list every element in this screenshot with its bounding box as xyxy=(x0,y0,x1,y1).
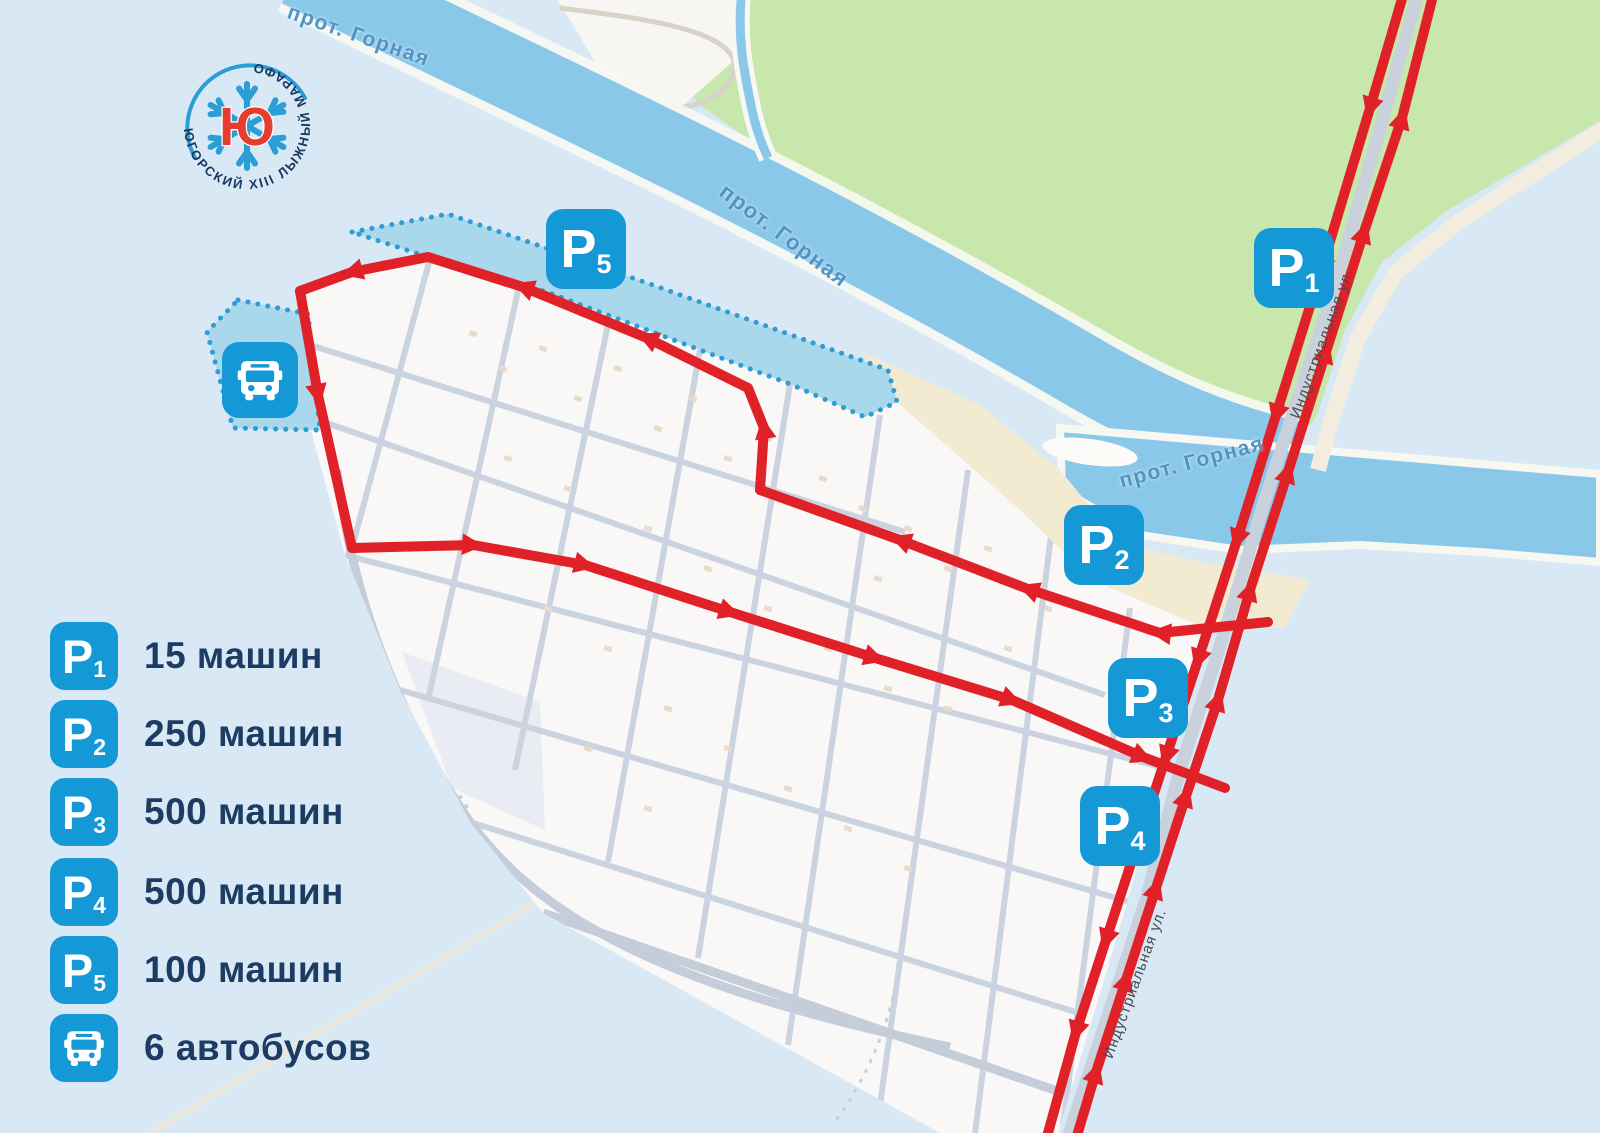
badge-letter: P xyxy=(62,711,93,758)
badge-sub: 1 xyxy=(1305,270,1320,297)
map-badge-p4: P4 xyxy=(1080,786,1160,866)
legend-badge-p2: P2 xyxy=(50,700,118,768)
legend-label-p3: 500 машин xyxy=(144,791,344,833)
legend-label-p2: 250 машин xyxy=(144,713,344,755)
badge-letter: P xyxy=(62,789,93,836)
legend-label-p4: 500 машин xyxy=(144,871,344,913)
map-badge-p1: P1 xyxy=(1254,228,1334,308)
legend-row-p3: P3 500 машин xyxy=(50,778,344,846)
legend-row-p5: P5 100 машин xyxy=(50,936,344,1004)
badge-sub: 4 xyxy=(1131,828,1146,855)
legend-badge-p1: P1 xyxy=(50,622,118,690)
event-logo: Ю ЮГОРСКИЙ XIII ЛЫЖНЫЙ МАРАФОН xyxy=(157,38,337,218)
badge-sub: 2 xyxy=(93,736,106,759)
legend-row-p1: P1 15 машин xyxy=(50,622,323,690)
badge-letter: P xyxy=(62,869,93,916)
badge-sub: 1 xyxy=(93,658,106,681)
legend-badge-p3: P3 xyxy=(50,778,118,846)
legend-label-p1: 15 машин xyxy=(144,635,323,677)
badge-letter: P xyxy=(1094,799,1130,853)
event-parking-map: прот. Горная прот. Горная прот. Горная И… xyxy=(0,0,1600,1133)
legend-badge-bus xyxy=(50,1014,118,1082)
badge-letter: P xyxy=(560,222,596,276)
badge-letter: P xyxy=(1078,518,1114,572)
badge-letter: P xyxy=(62,633,93,680)
badge-sub: 5 xyxy=(93,972,106,995)
badge-letter: P xyxy=(1268,241,1304,295)
legend-row-bus: 6 автобусов xyxy=(50,1014,371,1082)
legend-row-p2: P2 250 машин xyxy=(50,700,344,768)
badge-letter: P xyxy=(1122,671,1158,725)
legend-label-p5: 100 машин xyxy=(144,949,344,991)
bus-icon xyxy=(60,1024,108,1072)
map-badge-p3: P3 xyxy=(1108,658,1188,738)
badge-sub: 4 xyxy=(93,894,106,917)
legend-badge-p4: P4 xyxy=(50,858,118,926)
badge-sub: 3 xyxy=(1159,700,1174,727)
badge-sub: 2 xyxy=(1115,547,1130,574)
badge-sub: 3 xyxy=(93,814,106,837)
legend-row-p4: P4 500 машин xyxy=(50,858,344,926)
legend-badge-p5: P5 xyxy=(50,936,118,1004)
badge-sub: 5 xyxy=(597,251,612,278)
badge-letter: P xyxy=(62,947,93,994)
map-badge-p5: P5 xyxy=(546,209,626,289)
map-badge-bus xyxy=(222,342,298,418)
bus-icon xyxy=(233,353,287,407)
legend-label-bus: 6 автобусов xyxy=(144,1027,371,1069)
map-badge-p2: P2 xyxy=(1064,505,1144,585)
logo-center-letter: Ю xyxy=(219,97,275,157)
